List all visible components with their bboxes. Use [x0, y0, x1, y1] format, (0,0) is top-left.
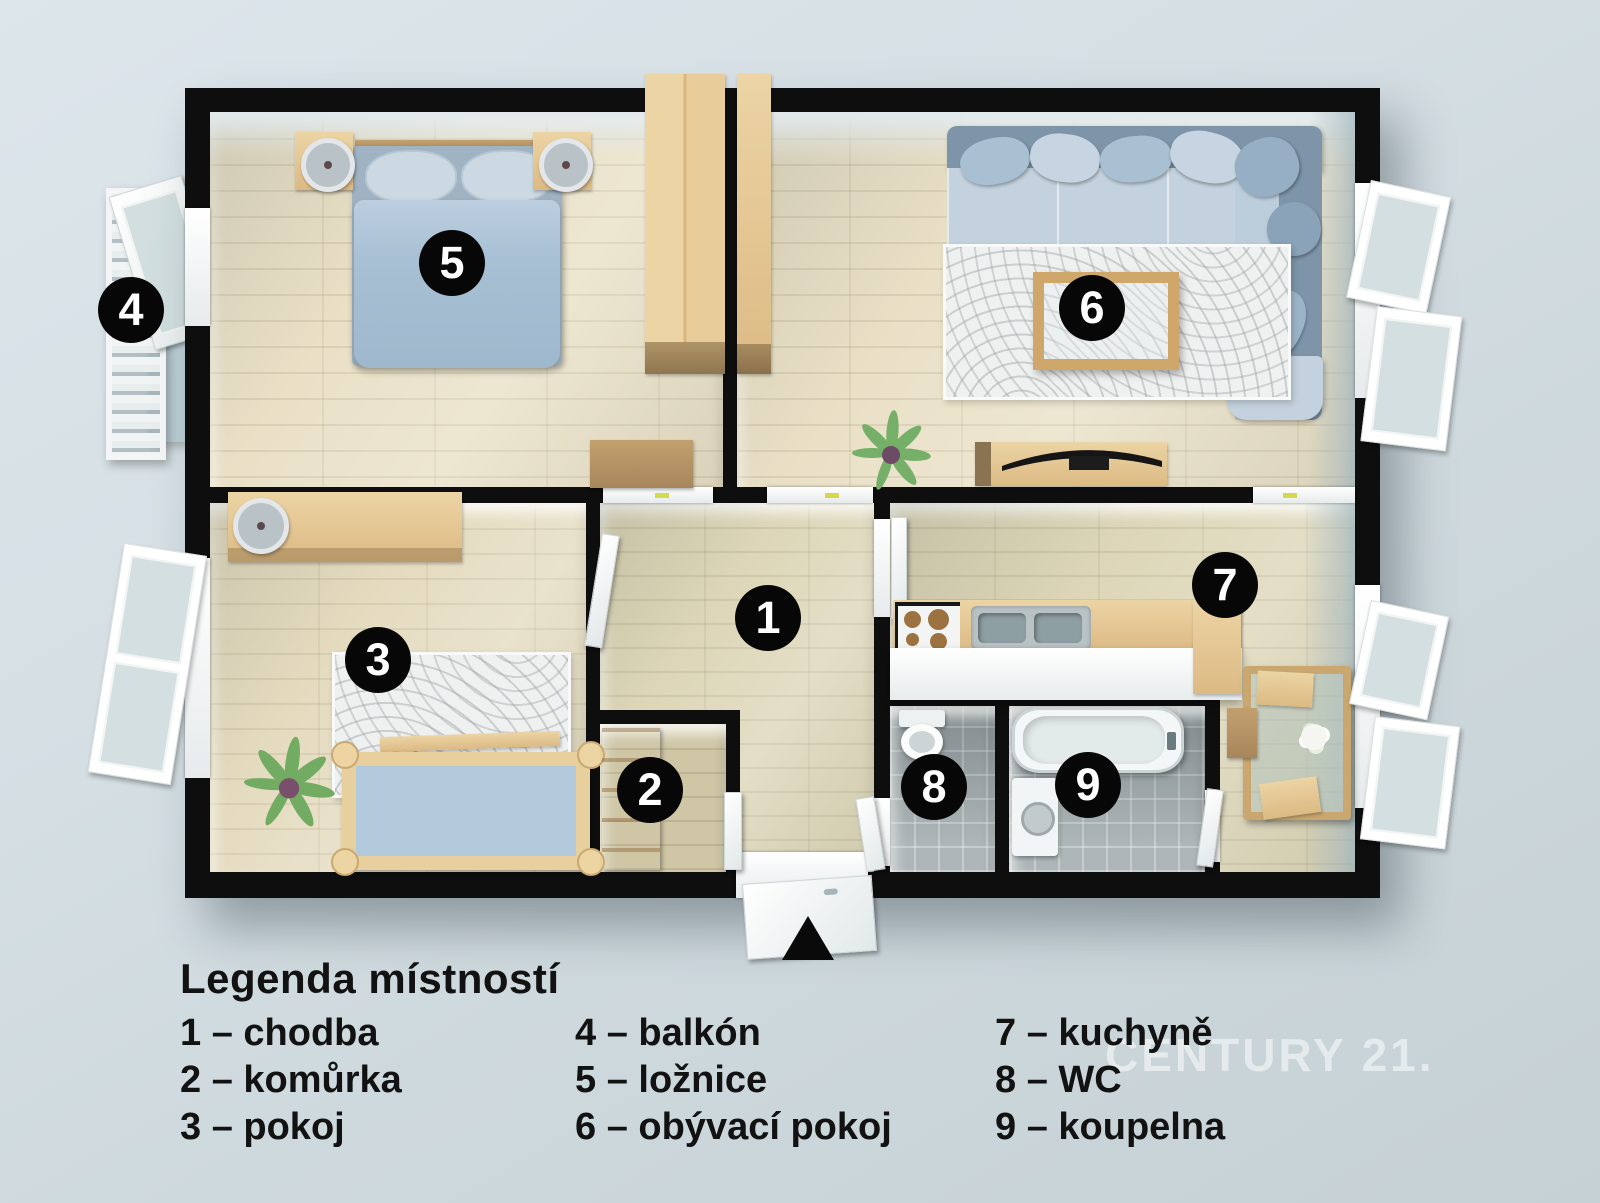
entrance-arrow-icon [782, 916, 834, 960]
tv [997, 444, 1167, 472]
room-badge-8: 8 [901, 754, 967, 820]
wall-wc-bath [995, 706, 1009, 872]
room-badge-9: 9 [1055, 752, 1121, 818]
stove [895, 602, 960, 654]
single-bed [342, 752, 590, 870]
bedside-lamp [539, 138, 593, 192]
legend-column-2: 4 – balkón 5 – ložnice 6 – obývací pokoj [575, 1010, 892, 1151]
wall-hall-kitchen [874, 503, 890, 519]
wardrobe-living [737, 74, 771, 374]
bedside-lamp [301, 138, 355, 192]
legend-item: 6 – obývací pokoj [575, 1104, 892, 1151]
apartment-plan: 1 2 3 5 6 7 8 9 [185, 88, 1380, 898]
window-kitchen-open [1360, 716, 1460, 850]
legend-item: 5 – ložnice [575, 1057, 892, 1104]
legend-item: 9 – koupelna [995, 1104, 1225, 1151]
legend-item: 4 – balkón [575, 1010, 892, 1057]
balcony-door-opening [185, 208, 210, 326]
floorplan-image: 1 2 3 5 6 7 8 9 4 CENTURY 21. Legenda mí… [0, 0, 1600, 1203]
century21-watermark: CENTURY 21. [1105, 1028, 1435, 1082]
legend-item: 1 – chodba [180, 1010, 402, 1057]
legend-item: 3 – pokoj [180, 1104, 402, 1151]
flower-vase [1301, 724, 1327, 750]
room-badge-2: 2 [617, 757, 683, 823]
dining-chair [1227, 708, 1257, 758]
kitchen-counter-front [890, 648, 1242, 700]
room-badge-3: 3 [345, 627, 411, 693]
kitchen-sink [971, 606, 1091, 650]
room-badge-1: 1 [735, 585, 801, 651]
washbasin [1012, 778, 1058, 856]
legend-column-1: 1 – chodba 2 – komůrka 3 – pokoj [180, 1010, 402, 1151]
komurka-door [724, 792, 742, 870]
plant [845, 410, 937, 496]
room-badge-4: 4 [98, 277, 164, 343]
wall-bedroom-living [723, 112, 737, 503]
window-living-open [1360, 306, 1462, 451]
dining-chair [1256, 671, 1314, 708]
wardrobe-bedroom [645, 74, 725, 374]
room-badge-7: 7 [1192, 552, 1258, 618]
desk-lamp [233, 498, 289, 554]
wall-komurka-top [586, 710, 740, 724]
bed-pillow [365, 150, 457, 204]
door-opening-kitchen-e [1253, 487, 1355, 503]
legend-title: Legenda místností [180, 955, 560, 1003]
plant [237, 736, 341, 836]
dresser-bedroom [590, 440, 693, 488]
room-badge-5: 5 [419, 230, 485, 296]
room-badge-6: 6 [1059, 275, 1125, 341]
legend-item: 2 – komůrka [180, 1057, 402, 1104]
